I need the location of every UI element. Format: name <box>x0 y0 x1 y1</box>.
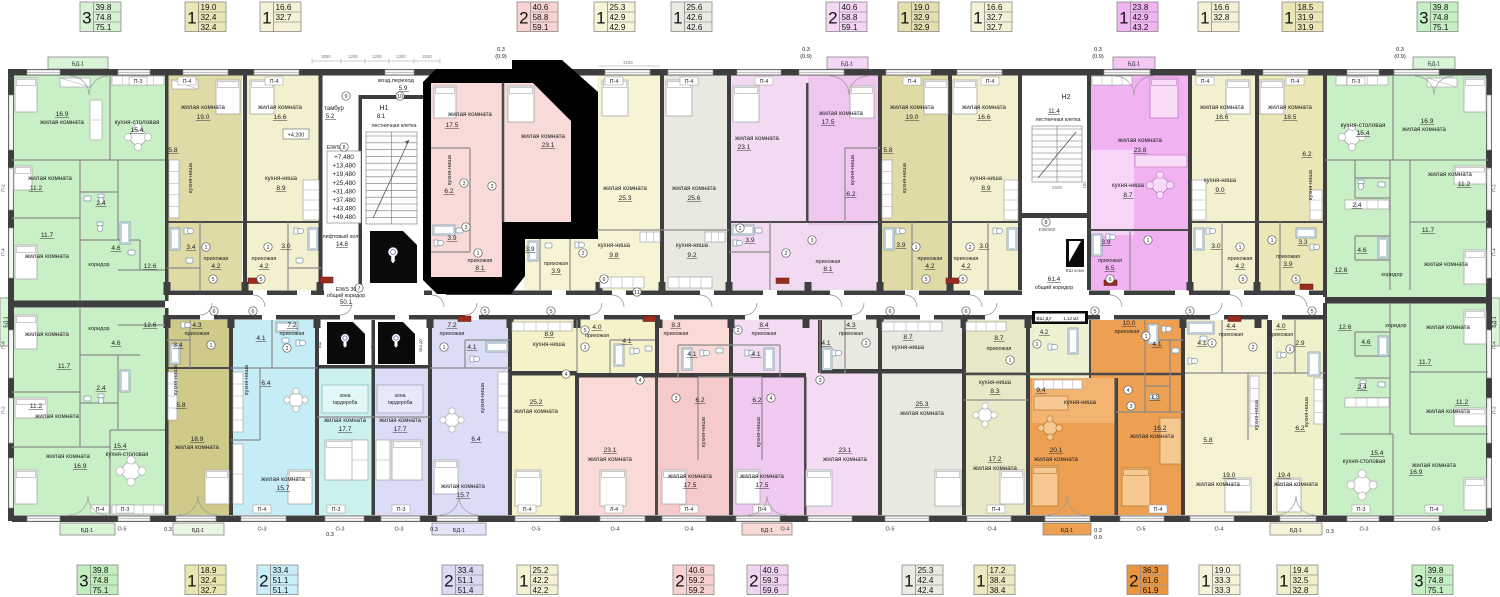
svg-text:51.1: 51.1 <box>273 576 289 585</box>
svg-text:2: 2 <box>444 572 453 591</box>
svg-text:39.8: 39.8 <box>1428 566 1444 575</box>
svg-text:8.4: 8.4 <box>759 322 768 329</box>
svg-text:1: 1 <box>900 9 909 28</box>
svg-text:1: 1 <box>262 9 271 28</box>
svg-text:(0.9): (0.9) <box>1394 54 1406 60</box>
svg-text:2: 2 <box>828 9 837 28</box>
svg-text:жилая комната: жилая комната <box>668 473 712 480</box>
svg-text:59.1: 59.1 <box>533 23 549 32</box>
svg-text:2.4: 2.4 <box>1352 202 1361 209</box>
svg-text:3.4: 3.4 <box>173 342 182 349</box>
svg-text:1300: 1300 <box>396 54 406 59</box>
svg-text:П-3: П-3 <box>397 507 406 513</box>
svg-text:5: 5 <box>1310 309 1313 315</box>
svg-text:12.6: 12.6 <box>144 263 157 270</box>
svg-text:4.1: 4.1 <box>751 351 760 358</box>
svg-text:5: 5 <box>1093 309 1096 315</box>
svg-text:жилая комната: жилая комната <box>181 104 225 111</box>
svg-text:59.3: 59.3 <box>763 576 779 585</box>
svg-text:16.6: 16.6 <box>1216 114 1229 121</box>
svg-text:БД-1: БД-1 <box>1428 62 1440 68</box>
svg-text:8.3: 8.3 <box>671 322 680 329</box>
svg-text:4.4: 4.4 <box>1226 323 1235 330</box>
svg-text:5.8: 5.8 <box>176 402 185 409</box>
svg-text:15.7: 15.7 <box>457 492 470 499</box>
svg-text:2: 2 <box>1251 345 1254 351</box>
svg-text:1: 1 <box>1288 347 1291 353</box>
svg-text:О-3: О-3 <box>395 527 404 533</box>
svg-text:18.5: 18.5 <box>1298 3 1314 12</box>
svg-text:жилая комната: жилая комната <box>1268 104 1312 111</box>
svg-text:17.5: 17.5 <box>446 122 459 129</box>
svg-text:БД-1: БД-1 <box>1492 316 1498 327</box>
svg-text:16.6: 16.6 <box>987 3 1003 12</box>
svg-text:58.8: 58.8 <box>533 13 549 22</box>
svg-text:EIWS60: EIWS60 <box>1039 227 1056 232</box>
svg-text:1: 1 <box>204 245 207 251</box>
svg-text:4.1: 4.1 <box>1197 340 1206 347</box>
svg-text:42.4: 42.4 <box>918 576 934 585</box>
svg-text:15.4: 15.4 <box>1371 450 1384 457</box>
svg-text:4.6: 4.6 <box>111 245 120 252</box>
svg-text:18.9: 18.9 <box>201 566 217 575</box>
svg-text:1: 1 <box>1008 358 1011 364</box>
svg-text:17.7: 17.7 <box>394 426 407 433</box>
svg-text:4.3: 4.3 <box>846 322 855 329</box>
svg-text:61.4: 61.4 <box>1048 276 1061 283</box>
svg-text:общий коридор: общий коридор <box>1035 284 1074 291</box>
svg-text:+7,480: +7,480 <box>334 154 354 161</box>
svg-text:1: 1 <box>187 572 196 591</box>
svg-text:1: 1 <box>209 343 212 349</box>
svg-text:25.6: 25.6 <box>688 195 701 202</box>
svg-text:11.2: 11.2 <box>1456 399 1469 406</box>
svg-text:32.7: 32.7 <box>987 13 1003 22</box>
svg-text:12.6: 12.6 <box>1339 324 1352 331</box>
svg-text:8.1: 8.1 <box>823 266 832 273</box>
svg-text:3: 3 <box>82 9 91 28</box>
svg-text:17.5: 17.5 <box>756 482 769 489</box>
svg-text:32.5: 32.5 <box>1293 576 1309 585</box>
svg-text:прихожая: прихожая <box>1219 332 1243 338</box>
svg-text:прихожая: прихожая <box>954 256 979 262</box>
svg-text:3.9: 3.9 <box>1101 239 1110 246</box>
svg-text:8: 8 <box>342 145 345 151</box>
svg-text:6: 6 <box>888 309 891 315</box>
svg-text:32.9: 32.9 <box>914 23 930 32</box>
svg-text:общий коридор: общий коридор <box>327 292 366 299</box>
svg-text:жилая комната: жилая комната <box>588 456 632 463</box>
svg-text:жилая комната: жилая комната <box>1130 433 1174 440</box>
svg-text:жилая комната: жилая комната <box>379 418 421 424</box>
svg-text:12.6: 12.6 <box>1335 267 1348 274</box>
svg-text:прихожая: прихожая <box>440 331 465 337</box>
svg-text:2: 2 <box>266 245 269 251</box>
svg-text:прихожая: прихожая <box>1115 329 1140 335</box>
svg-text:17.2: 17.2 <box>989 456 1002 463</box>
svg-text:39.8: 39.8 <box>1433 3 1449 12</box>
svg-text:33.3: 33.3 <box>1215 586 1231 595</box>
svg-text:П-4: П-4 <box>183 79 192 85</box>
svg-text:3.4: 3.4 <box>186 244 195 251</box>
svg-text:прихожая: прихожая <box>280 331 305 337</box>
svg-text:1: 1 <box>1035 342 1038 348</box>
svg-text:11.2: 11.2 <box>1458 181 1471 188</box>
svg-text:4.1: 4.1 <box>622 338 631 345</box>
svg-text:3.0: 3.0 <box>979 243 988 250</box>
svg-text:42.2: 42.2 <box>533 576 549 585</box>
svg-text:прихожая: прихожая <box>585 333 609 339</box>
svg-text:кухня-ниша: кухня-ниша <box>902 162 908 193</box>
svg-text:59.2: 59.2 <box>689 586 705 595</box>
svg-text:9.4: 9.4 <box>1036 387 1045 394</box>
svg-text:11: 11 <box>634 290 640 296</box>
svg-text:25.2: 25.2 <box>533 566 549 575</box>
svg-text:+25,480: +25,480 <box>332 180 356 187</box>
svg-text:2: 2 <box>749 572 758 591</box>
svg-text:6.2: 6.2 <box>846 191 855 198</box>
svg-text:2.4: 2.4 <box>96 200 105 207</box>
svg-text:11.7: 11.7 <box>1419 359 1432 366</box>
svg-text:75.1: 75.1 <box>96 23 112 32</box>
svg-text:кухня-ниша: кухня-ниша <box>1308 169 1314 200</box>
svg-text:15.7: 15.7 <box>277 485 290 492</box>
svg-text:4: 4 <box>638 378 641 384</box>
svg-text:прихожая: прихожая <box>664 331 689 337</box>
svg-text:0.3: 0.3 <box>1094 47 1102 53</box>
svg-text:38.4: 38.4 <box>990 586 1006 595</box>
svg-text:32.9: 32.9 <box>914 13 930 22</box>
svg-text:П-4: П-4 <box>1430 507 1439 513</box>
svg-text:6.2: 6.2 <box>695 397 704 404</box>
svg-text:О-3: О-3 <box>336 527 345 533</box>
svg-text:4.6: 4.6 <box>1361 339 1370 346</box>
svg-text:23.1: 23.1 <box>542 142 555 149</box>
svg-text:жилая комната: жилая комната <box>1196 481 1240 488</box>
svg-text:коридор: коридор <box>1385 323 1406 329</box>
svg-text:3.9: 3.9 <box>551 268 560 275</box>
svg-text:25.3: 25.3 <box>918 566 934 575</box>
svg-text:4.1: 4.1 <box>1152 341 1161 348</box>
svg-text:П-2: П-2 <box>1492 184 1497 192</box>
svg-text:1: 1 <box>973 9 982 28</box>
svg-text:4.1: 4.1 <box>256 335 265 342</box>
svg-text:жилая комната: жилая комната <box>1426 324 1470 331</box>
svg-text:П-4: П-4 <box>760 79 769 85</box>
svg-text:16.6: 16.6 <box>274 114 287 121</box>
svg-text:О-5: О-5 <box>532 527 541 533</box>
svg-text:58.8: 58.8 <box>842 13 858 22</box>
svg-text:40.6: 40.6 <box>533 3 549 12</box>
svg-text:кухня-столовая: кухня-столовая <box>106 452 149 458</box>
svg-text:18.9: 18.9 <box>191 436 204 443</box>
svg-text:П-3: П-3 <box>332 507 341 513</box>
svg-text:6.4: 6.4 <box>471 436 480 443</box>
svg-text:3: 3 <box>1414 572 1423 591</box>
svg-text:1: 1 <box>596 9 605 28</box>
svg-text:О-4: О-4 <box>611 527 620 533</box>
svg-text:15.4: 15.4 <box>114 443 127 450</box>
svg-text:жилая комната: жилая комната <box>40 119 84 126</box>
svg-text:жилая комната: жилая комната <box>1274 481 1318 488</box>
svg-text:кухня-ниша: кухня-ниша <box>676 243 709 249</box>
svg-text:10.0: 10.0 <box>1123 320 1136 327</box>
svg-text:42.4: 42.4 <box>918 586 934 595</box>
svg-text:6.2: 6.2 <box>752 397 761 404</box>
svg-text:32.7: 32.7 <box>987 23 1003 32</box>
svg-text:прихожая: прихожая <box>1098 258 1122 264</box>
svg-text:коридор: коридор <box>88 326 109 332</box>
svg-text:зона: зона <box>395 393 406 399</box>
svg-text:3.9: 3.9 <box>1283 261 1292 268</box>
svg-text:коридор: коридор <box>1381 272 1402 278</box>
svg-text:5: 5 <box>483 309 486 315</box>
svg-text:0.3: 0.3 <box>430 527 438 533</box>
svg-text:3: 3 <box>810 238 813 244</box>
svg-text:кухня-столовая: кухня-столовая <box>1343 459 1386 465</box>
svg-text:23.8: 23.8 <box>1134 147 1147 154</box>
svg-text:(0.9): (0.9) <box>495 54 507 60</box>
svg-text:БД-1: БД-1 <box>1128 62 1140 68</box>
svg-text:5: 5 <box>1241 277 1244 283</box>
svg-text:5.8: 5.8 <box>883 147 892 154</box>
svg-text:жилая комната: жилая комната <box>448 111 492 118</box>
svg-text:61.6: 61.6 <box>1143 576 1159 585</box>
svg-text:БД-1: БД-1 <box>453 528 465 534</box>
svg-text:ВШ ДУ: ВШ ДУ <box>1036 316 1052 322</box>
svg-text:6.5: 6.5 <box>1105 265 1114 272</box>
svg-text:4.3: 4.3 <box>192 322 201 329</box>
svg-text:жилая комната: жилая комната <box>823 456 867 463</box>
svg-text:жилая комната: жилая комната <box>441 483 485 490</box>
svg-text:17.5: 17.5 <box>684 482 697 489</box>
svg-text:23.1: 23.1 <box>738 144 751 151</box>
svg-text:4.6: 4.6 <box>111 340 120 347</box>
svg-text:8.9: 8.9 <box>981 185 990 192</box>
svg-text:прихожая: прихожая <box>185 331 210 337</box>
svg-text:1: 1 <box>1144 334 1147 340</box>
svg-text:59.6: 59.6 <box>763 586 779 595</box>
svg-text:11.7: 11.7 <box>41 232 54 239</box>
svg-text:1: 1 <box>519 572 528 591</box>
svg-text:32.7: 32.7 <box>276 13 292 22</box>
svg-text:23.1: 23.1 <box>604 447 617 454</box>
svg-text:П-4: П-4 <box>258 507 267 513</box>
svg-text:жилая комната: жилая комната <box>1412 462 1456 469</box>
svg-text:1: 1 <box>187 9 196 28</box>
svg-text:жилая комната: жилая комната <box>1428 171 1472 178</box>
svg-text:16.2: 16.2 <box>1154 425 1167 432</box>
svg-text:59.1: 59.1 <box>842 23 858 32</box>
svg-text:4.2: 4.2 <box>259 263 268 270</box>
svg-text:16.9: 16.9 <box>1421 118 1434 125</box>
svg-text:1: 1 <box>914 245 917 251</box>
svg-text:+37,480: +37,480 <box>332 197 356 204</box>
svg-text:8.9: 8.9 <box>544 331 553 338</box>
svg-text:16.9: 16.9 <box>74 463 87 470</box>
svg-text:3.3: 3.3 <box>1298 239 1307 246</box>
svg-text:П-4: П-4 <box>1 341 6 349</box>
svg-text:П-4: П-4 <box>908 79 917 85</box>
svg-text:1: 1 <box>442 345 445 351</box>
svg-text:9.0: 9.0 <box>1215 187 1224 194</box>
svg-text:3: 3 <box>490 184 493 190</box>
svg-text:П-4: П-4 <box>1492 341 1497 349</box>
svg-text:H2: H2 <box>1062 94 1071 101</box>
svg-text:3: 3 <box>674 396 677 402</box>
svg-text:1: 1 <box>1210 341 1213 347</box>
svg-text:40.6: 40.6 <box>763 566 779 575</box>
svg-text:П-3: П-3 <box>1357 507 1366 513</box>
svg-text:2: 2 <box>581 251 584 257</box>
svg-text:5: 5 <box>1188 309 1191 315</box>
svg-text:6.2: 6.2 <box>1295 425 1304 432</box>
svg-text:тамбур: тамбур <box>324 106 344 112</box>
svg-text:жилая комната: жилая комната <box>672 185 716 192</box>
svg-text:П-4: П-4 <box>992 507 1001 513</box>
svg-text:42.6: 42.6 <box>687 23 703 32</box>
svg-text:жилая комната: жилая комната <box>1118 137 1162 144</box>
svg-text:8.7: 8.7 <box>903 334 912 341</box>
svg-text:36.3: 36.3 <box>1143 566 1159 575</box>
svg-text:180: 180 <box>1082 181 1087 189</box>
svg-text:П-4: П-4 <box>1291 79 1300 85</box>
svg-text:1: 1 <box>904 572 913 591</box>
svg-text:жилая комната: жилая комната <box>740 473 784 480</box>
svg-text:17.7: 17.7 <box>339 426 352 433</box>
svg-text:25.3: 25.3 <box>619 195 632 202</box>
svg-text:39.8: 39.8 <box>93 566 109 575</box>
svg-text:15.4: 15.4 <box>131 127 144 134</box>
svg-text:19.0: 19.0 <box>1223 472 1236 479</box>
svg-text:прихожая: прихожая <box>252 256 277 262</box>
svg-text:4: 4 <box>1126 388 1129 394</box>
svg-text:2.4: 2.4 <box>96 385 105 392</box>
svg-text:жилая комната: жилая комната <box>890 104 934 111</box>
svg-text:1: 1 <box>583 345 586 351</box>
svg-text:1: 1 <box>738 226 741 232</box>
svg-text:6: 6 <box>1108 277 1111 283</box>
svg-text:жилая комната: жилая комната <box>46 453 90 460</box>
svg-text:2: 2 <box>519 9 528 28</box>
svg-text:2: 2 <box>1129 572 1138 591</box>
svg-text:кухня-ниша: кухня-ниша <box>979 380 1012 386</box>
svg-text:6: 6 <box>602 277 605 283</box>
svg-text:1: 1 <box>1284 9 1293 28</box>
svg-text:1.12 м2: 1.12 м2 <box>1063 316 1079 321</box>
svg-text:5: 5 <box>259 277 262 283</box>
svg-text:БД-1: БД-1 <box>4 316 10 327</box>
svg-text:П-2: П-2 <box>1 406 6 414</box>
svg-text:лестничная клетка: лестничная клетка <box>371 123 416 129</box>
svg-text:15.4: 15.4 <box>1357 130 1370 137</box>
svg-text:кухня-ниша: кухня-ниша <box>1064 400 1097 406</box>
svg-text:П-2: П-2 <box>1492 406 1497 414</box>
svg-text:23.1: 23.1 <box>839 447 852 454</box>
svg-text:жилая комната: жилая комната <box>28 175 72 182</box>
svg-text:9.8: 9.8 <box>609 252 618 259</box>
svg-text:31.9: 31.9 <box>1298 23 1314 32</box>
svg-text:43.2: 43.2 <box>1133 23 1149 32</box>
svg-text:П-3: П-3 <box>134 79 143 85</box>
svg-text:2.9: 2.9 <box>1295 340 1304 347</box>
svg-text:32.7: 32.7 <box>201 586 217 595</box>
svg-text:33.4: 33.4 <box>273 566 289 575</box>
svg-text:коридор: коридор <box>88 262 109 268</box>
svg-text:20.1: 20.1 <box>1050 447 1063 454</box>
svg-text:кухня-ниша: кухня-ниша <box>892 345 925 351</box>
svg-text:жилая комната: жилая комната <box>35 413 79 420</box>
svg-text:П-4: П-4 <box>523 507 532 513</box>
svg-text:+19,480: +19,480 <box>332 171 356 178</box>
svg-text:4.1: 4.1 <box>467 344 476 351</box>
svg-text:0.9: 0.9 <box>1094 535 1102 541</box>
svg-text:кухня-ниша: кухня-ниша <box>1254 399 1260 430</box>
svg-text:1: 1 <box>1200 9 1209 28</box>
svg-text:+43,480: +43,480 <box>332 206 356 213</box>
svg-text:П-3: П-3 <box>121 507 130 513</box>
svg-text:59.2: 59.2 <box>689 576 705 585</box>
svg-text:11.2: 11.2 <box>30 403 43 410</box>
svg-text:74.8: 74.8 <box>1428 576 1444 585</box>
svg-text:4.1: 4.1 <box>687 351 696 358</box>
svg-text:0.3: 0.3 <box>1396 47 1404 53</box>
svg-text:1.8: 1.8 <box>1150 394 1159 401</box>
svg-text:74.8: 74.8 <box>93 576 109 585</box>
svg-text:6: 6 <box>964 309 967 315</box>
svg-text:19.0: 19.0 <box>914 3 930 12</box>
svg-text:5: 5 <box>549 309 552 315</box>
svg-text:ВШ: ВШ <box>370 342 375 349</box>
svg-text:5.9: 5.9 <box>399 85 408 92</box>
svg-text:жилая комната: жилая комната <box>324 418 366 424</box>
svg-text:кухня-ниша: кухня-ниша <box>970 176 1003 182</box>
svg-text:8.9: 8.9 <box>276 185 285 192</box>
svg-text:Л-4: Л-4 <box>610 507 618 513</box>
svg-text:16.9: 16.9 <box>56 111 69 118</box>
svg-text:3: 3 <box>79 572 88 591</box>
svg-text:жилая комната: жилая комната <box>1034 456 1078 463</box>
svg-text:БД-1: БД-1 <box>761 528 773 534</box>
svg-text:кухня-столовая: кухня-столовая <box>115 119 160 126</box>
svg-text:жилая комната: жилая комната <box>900 410 944 417</box>
svg-text:4.6: 4.6 <box>1357 247 1366 254</box>
svg-text:возд.переход: возд.переход <box>378 78 414 84</box>
svg-text:+49,480: +49,480 <box>332 214 356 221</box>
svg-text:32.4: 32.4 <box>201 13 217 22</box>
svg-text:кухня-ниша: кухня-ниша <box>533 342 566 348</box>
svg-text:жилая комната: жилая комната <box>175 444 219 451</box>
svg-text:кухня-ниша: кухня-ниша <box>756 416 762 447</box>
svg-text:О-4: О-4 <box>988 527 997 533</box>
svg-text:3: 3 <box>818 378 821 384</box>
svg-text:1200: 1200 <box>372 54 382 59</box>
svg-text:прихожая: прихожая <box>987 346 1012 352</box>
svg-text:прихожая: прихожая <box>544 261 568 267</box>
svg-text:75.1: 75.1 <box>1433 23 1449 32</box>
svg-text:О-5: О-5 <box>118 527 127 533</box>
svg-text:кухня-ниша: кухня-ниша <box>850 154 856 185</box>
svg-text:12.6: 12.6 <box>144 322 157 329</box>
svg-text:5: 5 <box>583 328 586 334</box>
svg-text:жилая комната: жилая комната <box>973 465 1017 472</box>
svg-text:3050: 3050 <box>321 54 331 59</box>
svg-text:6.2: 6.2 <box>444 188 453 195</box>
svg-text:кухня-ниша: кухня-ниша <box>244 364 250 395</box>
svg-text:51.4: 51.4 <box>458 586 474 595</box>
svg-text:5: 5 <box>211 277 214 283</box>
svg-text:0.3: 0.3 <box>164 527 172 533</box>
